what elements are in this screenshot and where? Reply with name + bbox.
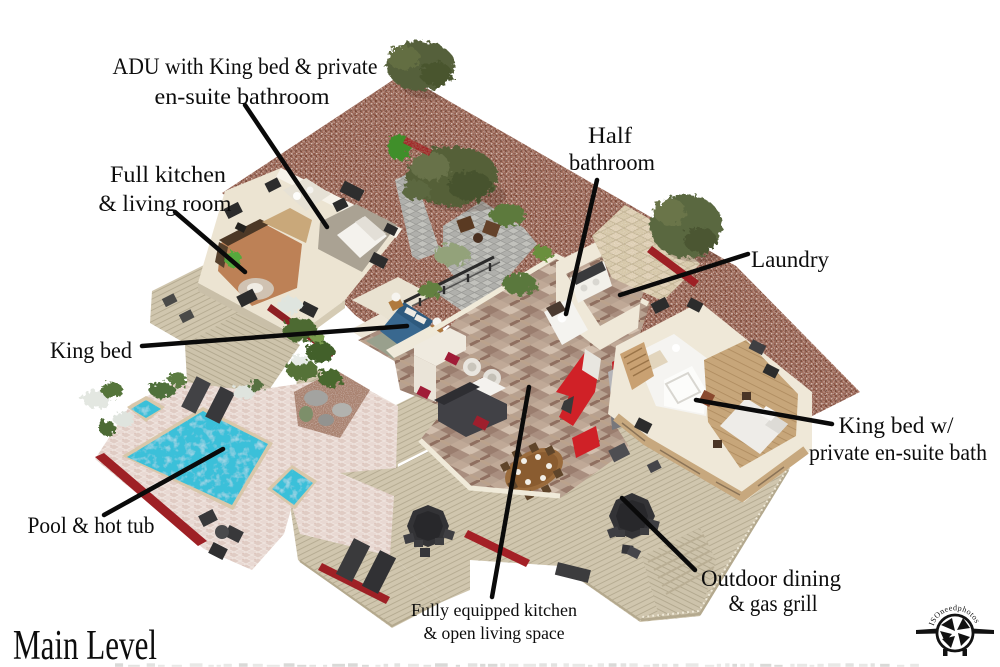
svg-text:King bed: King bed bbox=[50, 338, 132, 363]
svg-text:ADU with King bed & private: ADU with King bed & private bbox=[113, 54, 378, 79]
svg-text:en-suite bathroom: en-suite bathroom bbox=[155, 84, 330, 109]
svg-text:Pool & hot tub: Pool & hot tub bbox=[28, 513, 155, 538]
svg-text:Full kitchen: Full kitchen bbox=[110, 162, 227, 187]
svg-text:& open living space: & open living space bbox=[424, 623, 565, 643]
svg-text:King bed w/: King bed w/ bbox=[839, 413, 955, 438]
svg-text:Outdoor dining: Outdoor dining bbox=[701, 566, 841, 591]
svg-text:& gas grill: & gas grill bbox=[729, 591, 818, 616]
svg-text:Half: Half bbox=[588, 123, 632, 148]
svg-text:Fully equipped kitchen: Fully equipped kitchen bbox=[411, 600, 577, 620]
svg-text:& living room: & living room bbox=[99, 191, 232, 216]
svg-text:Laundry: Laundry bbox=[751, 247, 829, 272]
svg-text:Main Level: Main Level bbox=[13, 623, 157, 667]
svg-text:bathroom: bathroom bbox=[569, 150, 655, 175]
svg-text:private en-suite bath: private en-suite bath bbox=[809, 440, 987, 465]
